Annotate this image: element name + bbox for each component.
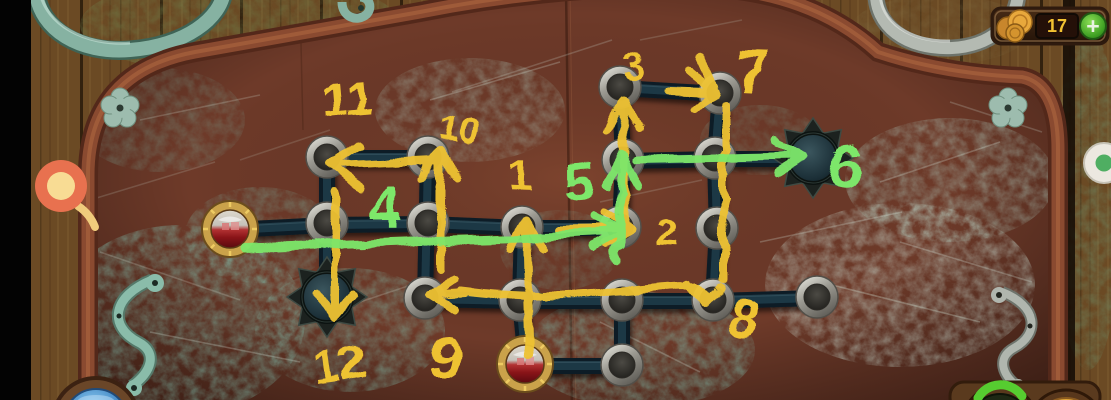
puzzle-node[interactable]	[601, 344, 643, 386]
step-label-11: 11	[318, 68, 373, 125]
bottom-right-buttons	[950, 382, 1104, 400]
step-label-4: 4	[366, 172, 398, 237]
step-label-2: 2	[653, 207, 678, 252]
plus-icon: +	[1086, 13, 1099, 39]
step-label-10: 10	[435, 105, 480, 151]
puzzle-node[interactable]	[796, 276, 838, 318]
plus-button[interactable]: +	[1080, 13, 1106, 39]
target-socket-node[interactable]	[287, 257, 367, 337]
screen-edge-bar	[0, 0, 31, 400]
puzzle-node[interactable]	[499, 279, 541, 321]
puzzle-scene: 11 10 1 2 3 7 8 9 12 4 5 6	[0, 0, 1111, 400]
step-label-9: 9	[428, 322, 461, 386]
step-label-7: 7	[731, 35, 767, 103]
puzzle-node[interactable]	[696, 207, 738, 249]
step-label-6: 6	[823, 130, 863, 202]
step-label-5: 5	[560, 151, 593, 211]
step-label-1: 1	[504, 149, 530, 199]
coin-count-value: 17	[1047, 16, 1067, 36]
coin-counter: 17 +	[992, 8, 1108, 44]
step-label-12: 12	[306, 332, 366, 392]
game-screen: 11 10 1 2 3 7 8 9 12 4 5 6	[0, 0, 1111, 400]
